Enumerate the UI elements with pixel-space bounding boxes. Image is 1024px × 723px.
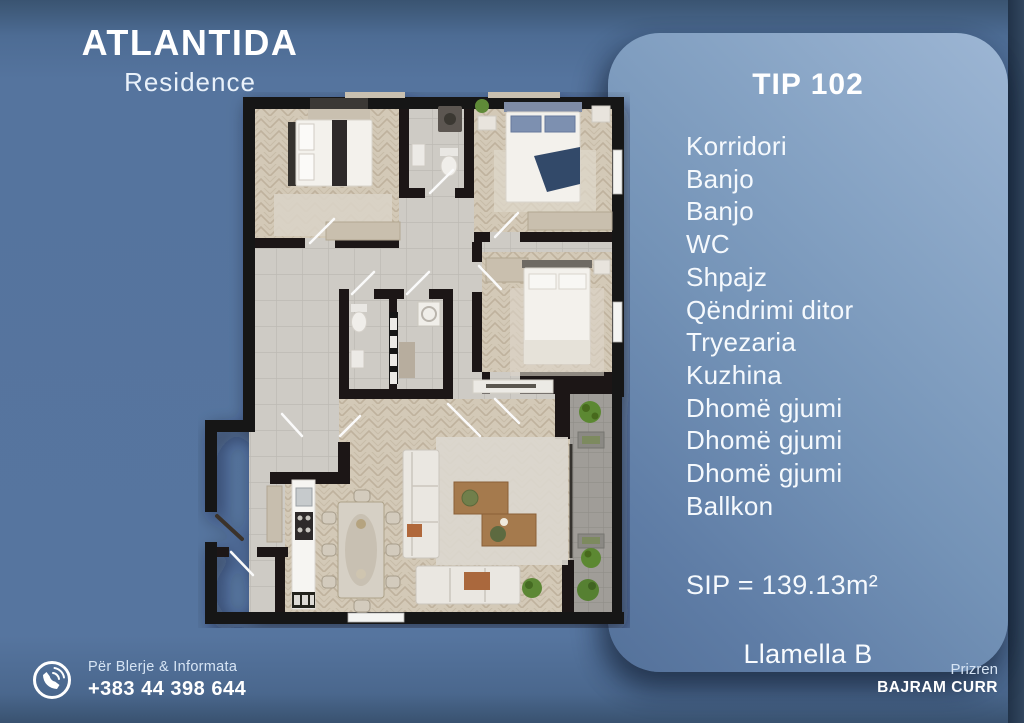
dresser xyxy=(528,212,612,230)
floorplan-image xyxy=(198,92,630,628)
stove xyxy=(295,512,313,540)
sink xyxy=(412,144,425,166)
dresser xyxy=(326,222,400,240)
room-list-item: Banjo xyxy=(686,195,853,228)
room-list-item: Dhomë gjumi xyxy=(686,457,853,490)
room-list-item: WC xyxy=(686,228,853,261)
sofa xyxy=(403,450,439,558)
phone-icon xyxy=(30,658,74,702)
right-edge-strip xyxy=(1008,0,1024,723)
contact-block: Për Blerje & Informata +383 44 398 644 xyxy=(30,658,246,702)
room-list-item: Tryezaria xyxy=(686,326,853,359)
plant xyxy=(579,401,601,423)
room-list-item: Shpajz xyxy=(686,261,853,294)
room-list-item: Dhomë gjumi xyxy=(686,424,853,457)
room-list-item: Qëndrimi ditor xyxy=(686,294,853,327)
location-name: BAJRAM CURR xyxy=(877,679,998,697)
contact-phone: +383 44 398 644 xyxy=(88,678,246,701)
plant xyxy=(577,579,599,601)
brand: ATLANTIDA Residence xyxy=(30,22,350,98)
room-list-item: Banjo xyxy=(686,163,853,196)
room-list: Korridori Banjo Banjo WC Shpajz Qëndrimi… xyxy=(686,130,853,522)
plant xyxy=(581,548,601,568)
sink xyxy=(351,350,364,368)
room-list-item: Dhomë gjumi xyxy=(686,392,853,425)
entrance-door xyxy=(217,516,242,539)
contact-label: Për Blerje & Informata xyxy=(88,659,246,675)
room-list-item: Ballkon xyxy=(686,490,853,523)
toilet xyxy=(352,312,367,332)
room-list-item: Korridori xyxy=(686,130,853,163)
plant xyxy=(475,99,489,113)
flyer-page: TIP 102 Korridori Banjo Banjo WC Shpajz … xyxy=(0,0,1024,723)
brand-name: ATLANTIDA xyxy=(30,22,350,64)
plant xyxy=(522,578,542,598)
location-city: Prizren xyxy=(877,661,998,678)
location-block: Prizren BAJRAM CURR xyxy=(877,661,998,697)
room-list-item: Kuzhina xyxy=(686,359,853,392)
total-area-label: SIP = 139.13m² xyxy=(686,570,878,601)
unit-type-title: TIP 102 xyxy=(608,68,1008,102)
unit-info-panel: TIP 102 Korridori Banjo Banjo WC Shpajz … xyxy=(608,33,1008,672)
kitchen-sink xyxy=(296,488,312,506)
balcony-floor xyxy=(570,394,612,612)
tall-cabinet xyxy=(267,486,282,542)
